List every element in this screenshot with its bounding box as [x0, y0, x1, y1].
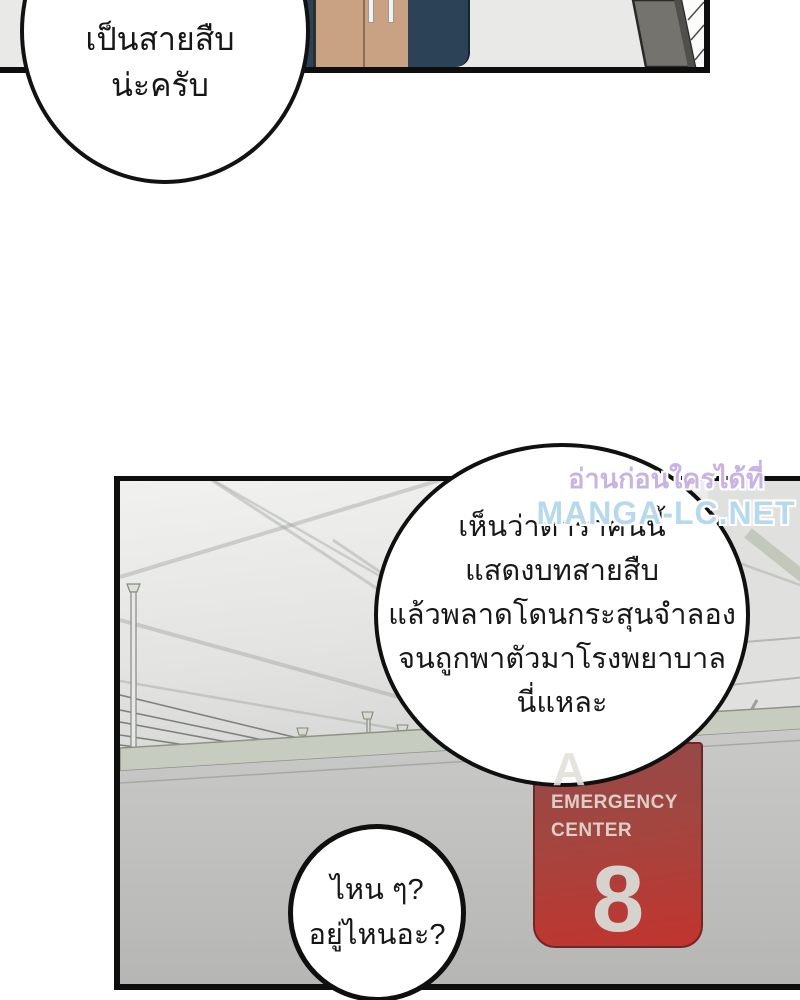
- sign-title: CENTER: [551, 820, 632, 842]
- navy-clothing-right: [408, 0, 470, 67]
- pole-cap: [127, 584, 140, 592]
- speech-line: ไหน ๆ?: [330, 868, 423, 913]
- doorway-pillar-graphic: [600, 0, 704, 67]
- sprinkler-pole: [131, 592, 136, 752]
- speech-line: เห็นว่าดาราคนนี้: [458, 505, 665, 549]
- speech-line: อยู่ไหนอะ?: [308, 913, 445, 958]
- sign-section-letter: A: [549, 742, 589, 796]
- tan-jacket: [313, 0, 414, 67]
- speech-bubble-large: เห็นว่าดาราคนนี้ แสดงบทสายสืบ แล้วพลาดโด…: [374, 443, 750, 787]
- zipper-pull: [368, 0, 374, 23]
- zipper-pull: [388, 0, 394, 23]
- jacket-seam: [363, 0, 365, 67]
- speech-line: นี่แหละ: [517, 681, 608, 725]
- speech-line: แสดงบทสายสืบ: [465, 549, 659, 593]
- speech-line: ได้ยินว่าเขา: [0, 0, 320, 6]
- speech-bubble-small: ไหน ๆ? อยู่ไหนอะ?: [288, 824, 466, 1000]
- speech-line: แล้วพลาดโดนกระสุนจำลอง: [388, 593, 736, 637]
- speech-line: จนถูกพาตัวมาโรงพยาบาล: [398, 637, 726, 681]
- speech-line: เป็นสายสืบ: [0, 20, 320, 58]
- speech-line: น่ะครับ: [0, 66, 320, 104]
- sign-number: 8: [535, 852, 701, 946]
- comic-page: ได้ยินว่าเขา เป็นสายสืบ น่ะครับ: [0, 0, 800, 1000]
